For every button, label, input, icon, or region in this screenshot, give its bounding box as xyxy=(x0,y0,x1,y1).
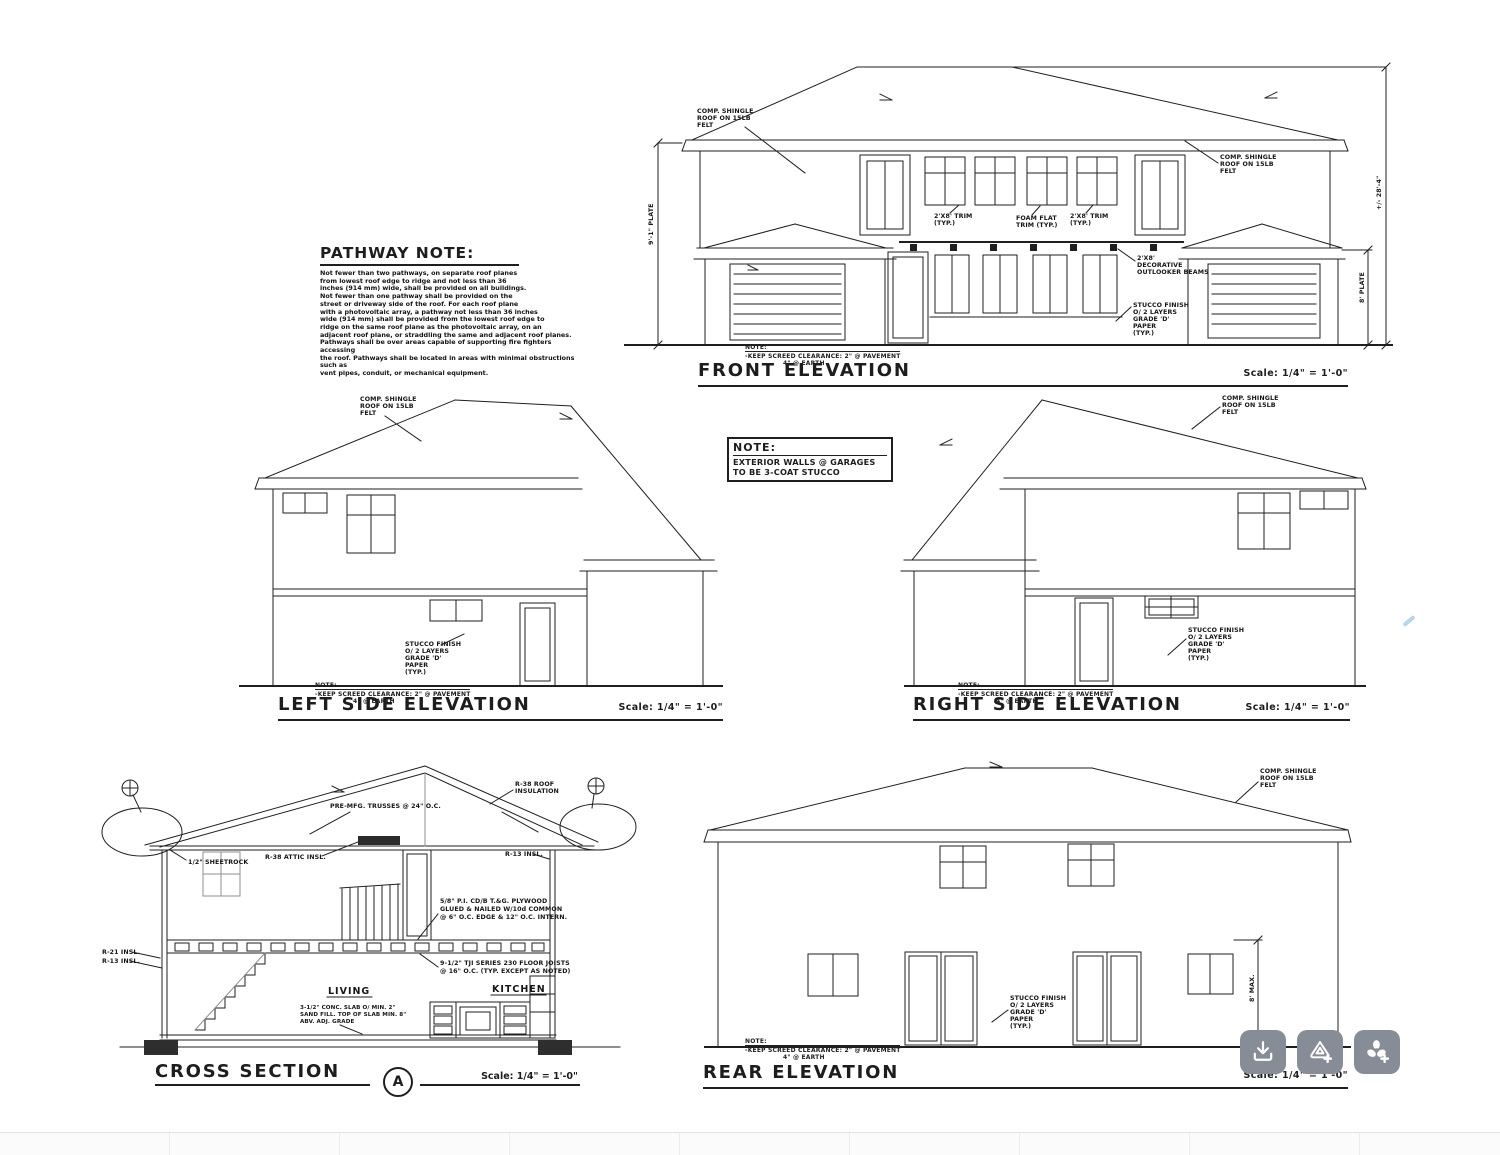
svg-text:COMP. SHINGLE: COMP. SHINGLE xyxy=(697,108,753,115)
svg-text:R-38 ATTIC INSL.: R-38 ATTIC INSL. xyxy=(265,854,326,861)
svg-text:PAPER: PAPER xyxy=(1010,1016,1033,1023)
svg-text:KITCHEN: KITCHEN xyxy=(492,984,546,995)
pathway-note-line: vent pipes, conduit, or mechanical equip… xyxy=(320,370,584,378)
rear-screed-note: NOTE: -KEEP SCREED CLEARANCE: 2" @ PAVEM… xyxy=(745,1038,901,1061)
right-annotations: COMP. SHINGLE ROOF ON 15LB FELT STUCCO F… xyxy=(1188,395,1278,662)
svg-text:R-38 ROOF: R-38 ROOF xyxy=(515,781,554,788)
pinwheel-plus-icon xyxy=(1365,1039,1389,1066)
svg-text:COMP. SHINGLE: COMP. SHINGLE xyxy=(1260,768,1316,775)
svg-text:(TYP.): (TYP.) xyxy=(1010,1023,1031,1030)
svg-text:3-1/2" CONC. SLAB O/ MIN. 2": 3-1/2" CONC. SLAB O/ MIN. 2" xyxy=(300,1005,396,1011)
left-elevation-title: LEFT SIDE ELEVATION xyxy=(278,694,531,715)
right-footing xyxy=(538,1040,572,1055)
right-elevation-scale: Scale: 1/4" = 1'-0" xyxy=(1245,702,1350,713)
svg-text:FELT: FELT xyxy=(1222,409,1239,416)
cross-section-scale: Scale: 1/4" = 1'-0" xyxy=(481,1071,578,1082)
cross-section-title-row: CROSS SECTION A Scale: 1/4" = 1'-0" xyxy=(155,1060,580,1086)
svg-text:STUCCO FINISH: STUCCO FINISH xyxy=(1188,627,1244,634)
svg-text:GRADE 'D': GRADE 'D' xyxy=(405,655,442,662)
front-leaders xyxy=(745,92,1277,321)
svg-text:(TYP.): (TYP.) xyxy=(1133,330,1154,337)
svg-text:GLUED & NAILED W/10d COMMON: GLUED & NAILED W/10d COMMON xyxy=(440,906,562,913)
svg-text:9-1/2" TJI SERIES 230 FLOOR JO: 9-1/2" TJI SERIES 230 FLOOR JOISTS xyxy=(440,960,570,967)
note-title: NOTE: xyxy=(745,344,900,352)
svg-text:FOAM FLAT: FOAM FLAT xyxy=(1016,215,1057,222)
spreadsheet-edge-strip xyxy=(0,1132,1500,1155)
add-model-button[interactable] xyxy=(1297,1030,1343,1074)
svg-text:O/ 2 LAYERS: O/ 2 LAYERS xyxy=(1010,1002,1054,1009)
svg-text:INSULATION: INSULATION xyxy=(515,788,559,795)
svg-text:DECORATIVE: DECORATIVE xyxy=(1137,262,1183,269)
svg-text:FELT: FELT xyxy=(697,122,714,129)
svg-text:COMP. SHINGLE: COMP. SHINGLE xyxy=(1222,395,1278,402)
pathway-note-line: Pathways shall be over areas capable of … xyxy=(320,339,584,354)
right-structure xyxy=(901,400,1366,686)
svg-text:LIVING: LIVING xyxy=(328,986,370,997)
svg-text:SAND FILL. TOP OF SLAB MIN. 8": SAND FILL. TOP OF SLAB MIN. 8" xyxy=(300,1012,406,1018)
front-elevation-drawing: 9'-1" PLATE +/- 28'-4" 8' PLATE xyxy=(620,55,1400,355)
front-right-garage xyxy=(1179,224,1345,345)
right-elevation-title-row: RIGHT SIDE ELEVATION Scale: 1/4" = 1'-0" xyxy=(913,694,1350,721)
pathway-note-title: PATHWAY NOTE: xyxy=(320,244,519,266)
cursor-artifact xyxy=(1402,615,1415,627)
right-side-elevation-drawing: COMP. SHINGLE ROOF ON 15LB FELT STUCCO F… xyxy=(900,393,1370,693)
front-lower-windows xyxy=(888,252,1122,343)
svg-text:2'X8' TRIM: 2'X8' TRIM xyxy=(934,213,972,220)
svg-text:(TYP.): (TYP.) xyxy=(934,220,955,227)
svg-text:STUCCO FINISH: STUCCO FINISH xyxy=(1133,302,1189,309)
download-button[interactable] xyxy=(1240,1030,1286,1074)
svg-text:ROOF ON 15LB: ROOF ON 15LB xyxy=(360,403,414,410)
note-title: NOTE: xyxy=(745,1038,900,1046)
dim-overall-height: +/- 28'-4" xyxy=(1376,176,1383,210)
svg-text:2'X8' TRIM: 2'X8' TRIM xyxy=(1070,213,1108,220)
svg-text:FELT: FELT xyxy=(1260,782,1277,789)
pathway-note-line: the roof. Pathways shall be located in a… xyxy=(320,355,584,370)
rear-elevation-drawing: 8' MAX. COMP. SHINGLE ROOF ON 15LB FELT … xyxy=(700,762,1355,1062)
svg-text:ROOF ON 15LB: ROOF ON 15LB xyxy=(1260,775,1314,782)
stucco-note-box: NOTE: EXTERIOR WALLS @ GARAGES TO BE 3-C… xyxy=(727,437,893,482)
left-annotations: COMP. SHINGLE ROOF ON 15LB FELT STUCCO F… xyxy=(360,396,461,676)
front-left-garage xyxy=(694,224,896,345)
cross-section-title: CROSS SECTION xyxy=(155,1061,340,1082)
svg-text:PRE-MFG. TRUSSES @ 24" O.C.: PRE-MFG. TRUSSES @ 24" O.C. xyxy=(330,802,441,810)
svg-text:O/ 2 LAYERS: O/ 2 LAYERS xyxy=(1188,634,1232,641)
download-icon xyxy=(1251,1039,1275,1066)
front-elevation-scale: Scale: 1/4" = 1'-0" xyxy=(1243,368,1348,379)
svg-text:OUTLOOKER BEAMS: OUTLOOKER BEAMS xyxy=(1137,269,1209,276)
left-structure xyxy=(240,400,722,686)
scale-underline xyxy=(420,1084,580,1087)
stucco-note-title: NOTE: xyxy=(733,441,887,456)
front-annotations: COMP. SHINGLE ROOF ON 15LB FELT COMP. SH… xyxy=(697,108,1276,337)
blueprint-page: { "titles": { "front": "FRONT ELEVATION"… xyxy=(0,0,1500,1154)
svg-text:R-21 INSL.: R-21 INSL. xyxy=(102,949,140,956)
section-annotations: PRE-MFG. TRUSSES @ 24" O.C. R-38 ROOF IN… xyxy=(102,781,571,1025)
svg-text:(TYP.): (TYP.) xyxy=(1070,220,1091,227)
add-fan-button[interactable] xyxy=(1354,1030,1400,1074)
svg-text:FELT: FELT xyxy=(360,410,377,417)
svg-text:GRADE 'D': GRADE 'D' xyxy=(1133,316,1170,323)
triangle-plus-icon xyxy=(1308,1039,1332,1066)
front-elevation-title: FRONT ELEVATION xyxy=(698,360,911,381)
stucco-note-line: TO BE 3-COAT STUCCO xyxy=(733,468,887,478)
svg-text:R-13 INSL.: R-13 INSL. xyxy=(102,958,140,965)
dim-max8: 8' MAX. xyxy=(1249,974,1256,1002)
svg-text:@ 16" O.C. (TYP. EXCEPT AS NOT: @ 16" O.C. (TYP. EXCEPT AS NOTED) xyxy=(440,967,571,975)
svg-text:ROOF ON 15LB: ROOF ON 15LB xyxy=(1222,402,1276,409)
note-title: NOTE: xyxy=(958,682,1113,690)
svg-text:O/ 2 LAYERS: O/ 2 LAYERS xyxy=(405,648,449,655)
svg-text:ROOF ON 15LB: ROOF ON 15LB xyxy=(697,115,751,122)
svg-text:FELT: FELT xyxy=(1220,168,1237,175)
title-underline xyxy=(155,1084,370,1087)
svg-text:COMP. SHINGLE: COMP. SHINGLE xyxy=(360,396,416,403)
section-marker: A xyxy=(383,1067,413,1097)
rear-annotations: COMP. SHINGLE ROOF ON 15LB FELT STUCCO F… xyxy=(1010,768,1316,1030)
svg-text:STUCCO FINISH: STUCCO FINISH xyxy=(1010,995,1066,1002)
front-dimensions xyxy=(654,63,1390,349)
svg-text:R-13 INSL.: R-13 INSL. xyxy=(505,851,543,858)
note-line: -KEEP SCREED CLEARANCE: 2" @ PAVEMENT xyxy=(745,353,901,360)
note-title: NOTE: xyxy=(315,682,470,690)
svg-text:STUCCO FINISH: STUCCO FINISH xyxy=(405,641,461,648)
svg-text:1/2" SHEETROCK: 1/2" SHEETROCK xyxy=(188,859,249,866)
svg-text:O/ 2 LAYERS: O/ 2 LAYERS xyxy=(1133,309,1177,316)
svg-text:@ 6" O.C. EDGE & 12" O.C. INTE: @ 6" O.C. EDGE & 12" O.C. INTERN. xyxy=(440,913,567,921)
dim-plate8: 8' PLATE xyxy=(1359,272,1366,303)
svg-text:GRADE 'D': GRADE 'D' xyxy=(1010,1009,1047,1016)
pathway-note: PATHWAY NOTE: Not fewer than two pathway… xyxy=(320,243,584,378)
left-elevation-title-row: LEFT SIDE ELEVATION Scale: 1/4" = 1'-0" xyxy=(278,694,723,721)
svg-text:ROOF ON 15LB: ROOF ON 15LB xyxy=(1220,161,1274,168)
left-leaders xyxy=(385,413,572,645)
svg-text:GRADE 'D': GRADE 'D' xyxy=(1188,641,1225,648)
dim-plate9: 9'-1" PLATE xyxy=(648,204,655,246)
svg-text:COMP. SHINGLE: COMP. SHINGLE xyxy=(1220,154,1276,161)
rear-elevation-title: REAR ELEVATION xyxy=(703,1062,899,1083)
left-side-elevation-drawing: COMP. SHINGLE ROOF ON 15LB FELT STUCCO F… xyxy=(235,393,725,693)
svg-text:5/8" P.I. CD/B T.&G. PLYWOOD: 5/8" P.I. CD/B T.&G. PLYWOOD xyxy=(440,898,547,905)
svg-text:PAPER: PAPER xyxy=(1188,648,1211,655)
svg-text:ABV. ADJ. GRADE: ABV. ADJ. GRADE xyxy=(300,1019,354,1025)
note-line: 4" @ EARTH xyxy=(745,1054,901,1061)
attic-insulation-batt xyxy=(358,836,400,845)
svg-text:PAPER: PAPER xyxy=(405,662,428,669)
note-line: -KEEP SCREED CLEARANCE: 2" @ PAVEMENT xyxy=(745,1047,901,1054)
svg-text:(TYP.): (TYP.) xyxy=(405,669,426,676)
svg-text:TRIM (TYP.): TRIM (TYP.) xyxy=(1016,222,1058,229)
rear-leaders xyxy=(990,762,1258,1022)
left-footing xyxy=(144,1040,178,1055)
left-elevation-scale: Scale: 1/4" = 1'-0" xyxy=(618,702,723,713)
svg-text:(TYP.): (TYP.) xyxy=(1188,655,1209,662)
svg-text:PAPER: PAPER xyxy=(1133,323,1156,330)
svg-text:2'X8': 2'X8' xyxy=(1137,255,1155,262)
front-elevation-title-row: FRONT ELEVATION Scale: 1/4" = 1'-0" xyxy=(698,360,1348,387)
cross-section-drawing: PRE-MFG. TRUSSES @ 24" O.C. R-38 ROOF IN… xyxy=(100,762,635,1062)
right-elevation-title: RIGHT SIDE ELEVATION xyxy=(913,694,1182,715)
